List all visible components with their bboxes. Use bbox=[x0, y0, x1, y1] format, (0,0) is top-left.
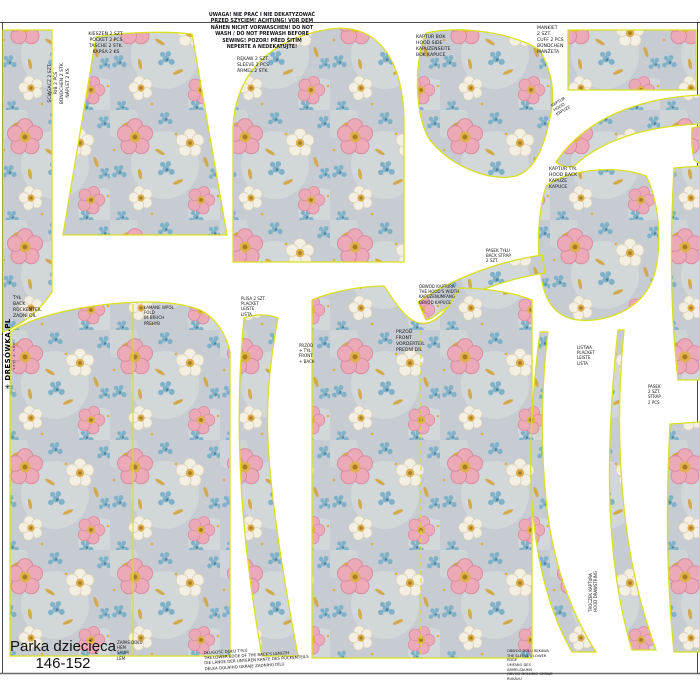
label-cuff: MANKIET 2 SZT. CUFF 2 PCS BÜNDCHEN MANŽE… bbox=[537, 26, 567, 56]
piece-side-strip-bottom bbox=[667, 422, 700, 652]
label-front-back: PRZÓD + TYŁ FRONT + BACK bbox=[299, 343, 325, 364]
label-rib: ŚCIĄGACZ 2 SZT. RIB 2 PCS BÜNDCHEN 2 STK… bbox=[48, 52, 72, 114]
piece-zip-placket-right bbox=[609, 330, 656, 650]
label-fold: ŁAMANE WPÓŁ FOLD IM BRUCH PŘEHYB bbox=[144, 305, 184, 326]
piece-back bbox=[10, 302, 230, 656]
note-sleeve-edge: OBWÓD DOŁU RĘKAWA THE SLEEVE'S LOWER EDG… bbox=[507, 649, 557, 682]
fabric-panel-sheet: UWAGA! NIE PRAĆ I NIE DEKATYZOWAĆ PRZED … bbox=[0, 0, 700, 700]
product-size-title: Parka dziecięca 146-152 bbox=[2, 639, 124, 673]
brand-tagline: szyj z nami bbox=[12, 306, 16, 402]
label-hood-side: KAPTUR BOK HOOD SIDE KAPUZENSEITE BOK KA… bbox=[416, 35, 458, 59]
label-zip-placket: LISTWA PLACKET LEISTE LIŠTA bbox=[577, 345, 607, 366]
piece-hood-strip bbox=[556, 95, 700, 167]
piece-hood-back bbox=[539, 170, 659, 321]
piece-rib-strip bbox=[3, 30, 52, 332]
label-drawstring: TROCZEK KAPTURA HOOD DRAWSTRING bbox=[588, 542, 598, 612]
piece-zip-placket-left bbox=[531, 332, 596, 652]
label-hood-back: KAPTUR TYŁ HOOD BACK KAPUZE KAPUCE bbox=[549, 167, 589, 191]
label-placket: PLISA 2 SZT. PLACKET LEISTE LIŠTA bbox=[241, 296, 277, 317]
label-back-strap: PASEK TYŁU BACK STRAP 2 SZT. bbox=[486, 248, 526, 264]
brand-name-text: DRESÓWKA.PL bbox=[4, 318, 12, 380]
label-sleeve: RĘKAW 2 SZT. SLEEVE 2 PCS ÄRMEL 2 STK. bbox=[237, 57, 277, 75]
label-back: TYŁ BACK RÜCKENTEIL ZADNÍ DÍL bbox=[13, 296, 51, 320]
piece-pocket bbox=[63, 32, 227, 235]
label-front: PRZÓD FRONT VORDERTEIL PŘEDNÍ DÍL bbox=[396, 330, 438, 354]
label-strap: PASEK 2 SZT. STRAP 2 PCS bbox=[648, 384, 670, 405]
brand-mark: ✳ DRESÓWKA.PL szyj z nami bbox=[4, 306, 16, 402]
piece-edge-offcut bbox=[692, 126, 700, 164]
note-hood-width: OBWÓD KAPTURA THE HOOD'S WIDTH KAPUZENUM… bbox=[419, 284, 491, 305]
label-pocket: KIESZEŃ 2 SZT. POCKET 2 PCS TASCHE 2 STK… bbox=[84, 32, 128, 56]
flower-asterisk-icon: ✳ bbox=[4, 383, 12, 389]
piece-cuff bbox=[568, 30, 696, 90]
prewash-warning: UWAGA! NIE PRAĆ I NIE DEKATYZOWAĆ PRZED … bbox=[196, 13, 328, 52]
brand-name: ✳ DRESÓWKA.PL bbox=[4, 306, 12, 402]
piece-placket bbox=[239, 315, 298, 656]
piece-side-strip-top bbox=[671, 166, 700, 380]
